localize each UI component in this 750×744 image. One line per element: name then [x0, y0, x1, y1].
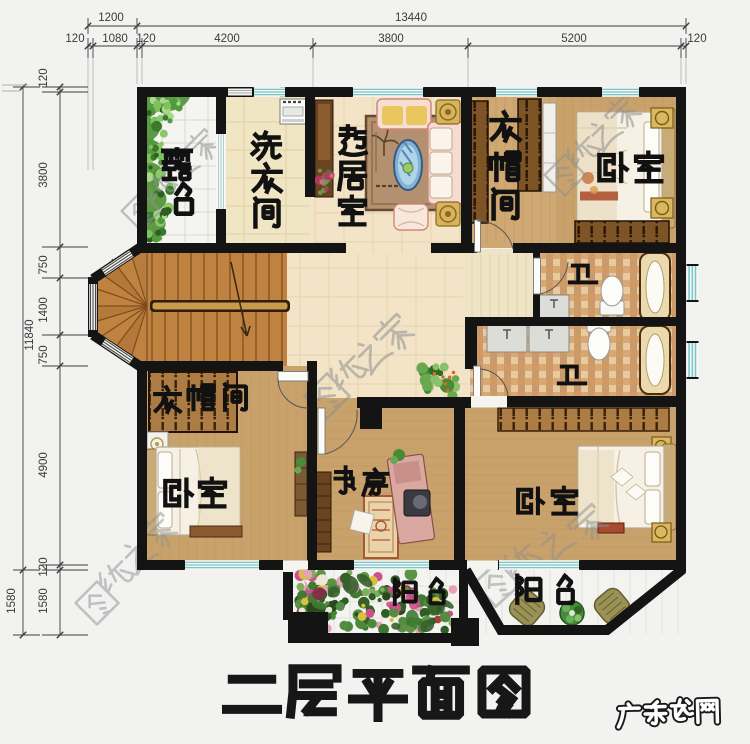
svg-text:120: 120	[65, 33, 84, 45]
svg-text:750: 750	[38, 345, 50, 364]
svg-text:120: 120	[38, 68, 50, 87]
svg-text:4900: 4900	[38, 452, 50, 478]
svg-text:1080: 1080	[102, 33, 128, 45]
svg-text:1580: 1580	[6, 588, 18, 614]
svg-text:1200: 1200	[98, 12, 124, 24]
svg-text:5200: 5200	[561, 33, 587, 45]
svg-text:120: 120	[136, 33, 155, 45]
svg-text:120: 120	[687, 33, 706, 45]
svg-text:1400: 1400	[38, 297, 50, 323]
svg-text:120: 120	[38, 557, 50, 576]
svg-text:11840: 11840	[24, 319, 36, 350]
svg-text:3800: 3800	[38, 162, 50, 188]
svg-text:3800: 3800	[378, 33, 404, 45]
svg-text:750: 750	[38, 255, 50, 274]
svg-text:4200: 4200	[214, 33, 240, 45]
svg-text:1580: 1580	[38, 588, 50, 614]
svg-text:13440: 13440	[395, 12, 427, 24]
